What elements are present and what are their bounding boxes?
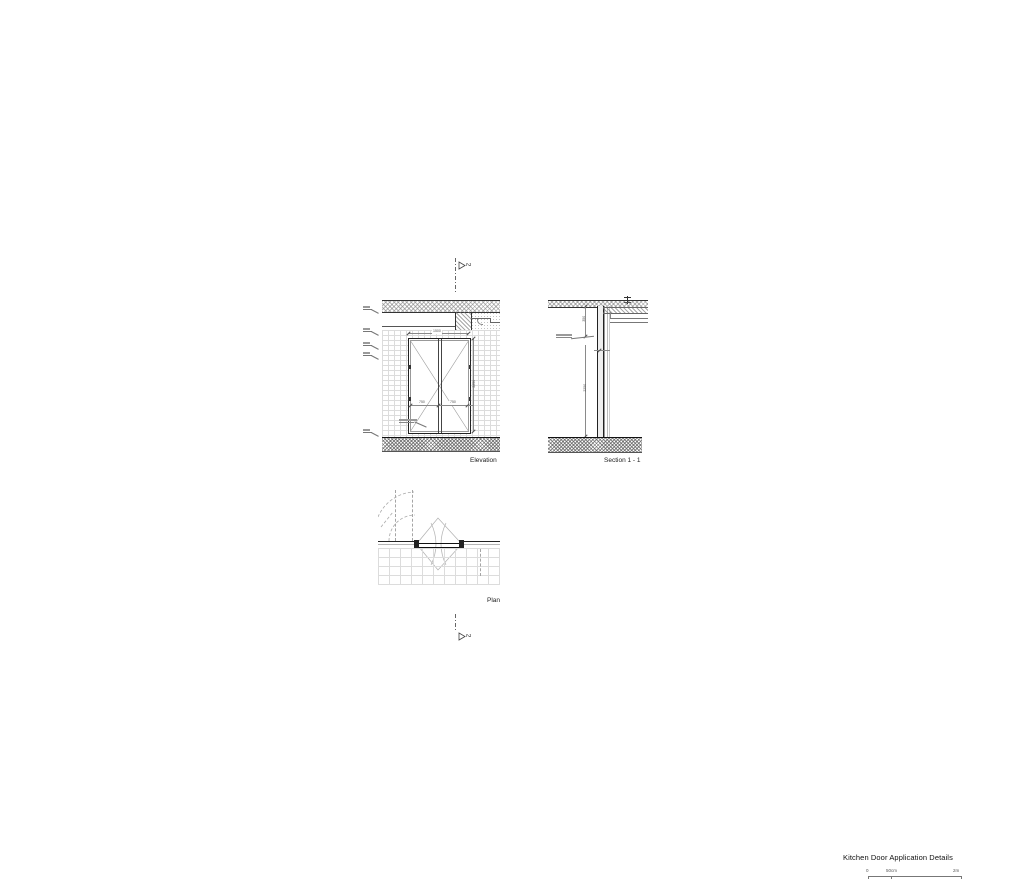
plan-door-leaves (419, 543, 459, 548)
leader-tail (371, 331, 379, 336)
plan-floor-tiles (378, 548, 500, 585)
ceiling-hanger-cap (624, 302, 631, 303)
ceiling-hanger-cap (624, 297, 631, 298)
door-hinge (469, 365, 472, 369)
leader-annotation (363, 342, 379, 351)
dashed-tile-line (480, 549, 481, 576)
scale-label-mid: 50cm (886, 868, 897, 873)
section-cut-number-text: 2 (464, 634, 471, 638)
section-cut-number-bottom: 2 (466, 632, 470, 639)
scale-label-end: 2m (953, 868, 959, 873)
note-leader-line (571, 336, 594, 339)
annotation-text-smudge (363, 429, 370, 431)
dim-label-height-text: 2250 (584, 384, 588, 392)
dim-label-height: 2250 (581, 386, 591, 390)
annotation-text-smudge (363, 306, 370, 308)
plan-label: Plan (487, 598, 500, 605)
scale-bar-tick (891, 876, 892, 879)
scale-label-zero: 0 (866, 868, 869, 873)
leader-tail (371, 309, 379, 314)
dim-label-head: 350 (581, 317, 589, 321)
section-cut-line-bottom (455, 614, 456, 632)
section-cut-number-top: 2 (466, 261, 470, 268)
elevation-wall-finish-patch (471, 312, 500, 330)
scale-bar-tick (868, 876, 869, 879)
scale-bar-line (868, 876, 962, 877)
elevation-door (408, 338, 471, 434)
elevation-label: Elevation (470, 458, 497, 465)
wall-inner-line (464, 544, 500, 545)
annotation-text-smudge (363, 342, 370, 344)
dashed-tile-line (412, 490, 413, 541)
annotation-text-smudge (363, 352, 370, 354)
dim-label-door-height-text: 2250 (473, 380, 477, 388)
door-hinge (408, 365, 411, 369)
leader-annotation (363, 306, 379, 315)
scale-bar-tick (961, 876, 962, 879)
note-underline (399, 422, 414, 423)
leader-tail (371, 355, 379, 360)
note-text-smudge (556, 334, 572, 336)
ceiling-band-lower (610, 318, 648, 323)
dim-label-door-width: 1500 (432, 330, 442, 334)
dim-label-leaf-left: 750 (418, 401, 426, 405)
leader-tail (371, 432, 379, 437)
note-underline (556, 337, 572, 338)
door-hinge (408, 397, 411, 401)
leader-annotation (363, 352, 379, 361)
dim-label-door-height: 2250 (470, 382, 480, 386)
door-jamb-right (459, 540, 464, 548)
section-label: Section 1 - 1 (604, 458, 641, 465)
section-cut-number-text: 2 (464, 263, 471, 267)
leader-annotation (363, 328, 379, 337)
frame-dim-tick-line (594, 350, 610, 351)
door-hinge (469, 397, 472, 401)
dim-label-head-text: 350 (583, 316, 587, 322)
elevation-column (455, 312, 472, 330)
cornice-line (490, 322, 500, 323)
dim-label-leaf-right: 750 (449, 401, 457, 405)
wall-finish-line (604, 306, 605, 437)
door-mullion (438, 339, 442, 433)
leader-tail (371, 345, 379, 350)
leader-annotation (363, 429, 379, 438)
wall-inner-line (378, 544, 415, 545)
section-door-frame (597, 306, 604, 437)
section-floor-slab (548, 437, 642, 453)
dim-line-leaves (410, 405, 473, 406)
drawing-sheet: 2 (0, 0, 1024, 896)
plan-view (378, 490, 500, 608)
wall-finish-line (607, 306, 608, 437)
dashed-tile-line (395, 490, 396, 541)
sheet-title: Kitchen Door Application Details (843, 853, 953, 862)
elevation-floor-slab (382, 437, 500, 452)
section-cut-line-top (455, 258, 456, 294)
annotation-text-smudge (363, 328, 370, 330)
wall-finish-line (609, 306, 610, 437)
ceiling-band-connector (610, 312, 611, 318)
